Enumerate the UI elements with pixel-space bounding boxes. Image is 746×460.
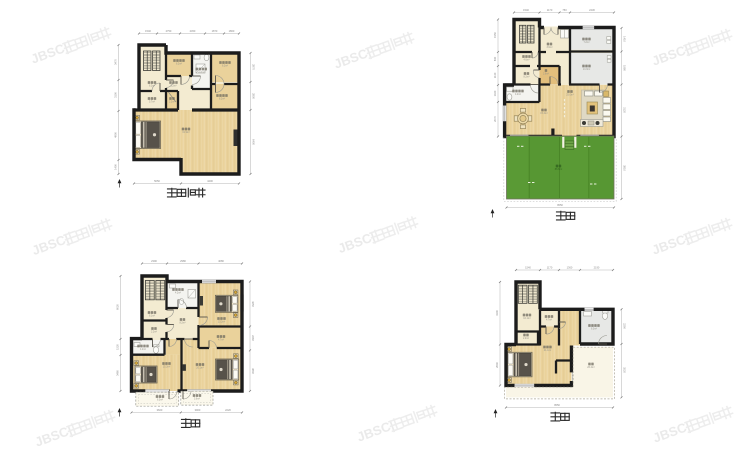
svg-text:1400: 1400 — [114, 164, 118, 170]
svg-text:8.2m²: 8.2m² — [179, 321, 185, 324]
svg-text:8.2m²: 8.2m² — [219, 97, 225, 100]
svg-text:2.2m²: 2.2m² — [523, 337, 529, 340]
svg-text:21.1m²: 21.1m² — [544, 349, 552, 352]
svg-text:6.2m²: 6.2m² — [222, 64, 228, 67]
svg-text:31.9m²: 31.9m² — [182, 131, 190, 134]
svg-text:2750: 2750 — [166, 29, 172, 33]
svg-text:86.6m²: 86.6m² — [555, 168, 563, 171]
svg-text:6.3m²: 6.3m² — [157, 398, 163, 401]
svg-text:4.2m²: 4.2m² — [198, 71, 204, 74]
svg-text:6400: 6400 — [251, 139, 255, 145]
svg-text:1870: 1870 — [212, 29, 218, 33]
svg-text:1360: 1360 — [567, 266, 573, 270]
svg-text:4.2m²: 4.2m² — [175, 291, 181, 294]
svg-text:4250: 4250 — [251, 301, 255, 307]
svg-text:4.2m²: 4.2m² — [515, 93, 521, 96]
svg-text:4900: 4900 — [114, 132, 118, 138]
svg-text:3.2m²: 3.2m² — [170, 84, 176, 87]
svg-text:1950: 1950 — [493, 32, 497, 38]
svg-text:5.7m²: 5.7m² — [149, 100, 155, 103]
svg-text:2430: 2430 — [589, 8, 595, 12]
svg-text:2800: 2800 — [251, 93, 255, 99]
svg-text:14.3m²: 14.3m² — [583, 68, 591, 71]
svg-text:2980: 2980 — [180, 259, 186, 263]
svg-text:1800: 1800 — [229, 29, 235, 33]
svg-text:1540: 1540 — [525, 266, 531, 270]
svg-text:1170: 1170 — [547, 266, 553, 270]
svg-text:6.3m²: 6.3m² — [591, 327, 597, 330]
svg-text:4.2m²: 4.2m² — [140, 348, 146, 351]
svg-text:3900: 3900 — [195, 408, 201, 412]
svg-text:4.6m²: 4.6m² — [523, 58, 529, 61]
svg-text:4.7m²: 4.7m² — [546, 318, 552, 321]
svg-text:3840: 3840 — [251, 368, 255, 374]
svg-text:1170: 1170 — [547, 8, 553, 12]
svg-text:6.2m²: 6.2m² — [176, 62, 182, 65]
svg-text:6.2m²: 6.2m² — [149, 84, 155, 87]
svg-text:3470: 3470 — [114, 59, 118, 65]
svg-text:3460: 3460 — [116, 370, 120, 376]
svg-text:20.1m²: 20.1m² — [196, 366, 204, 369]
svg-text:15.2m²: 15.2m² — [163, 365, 171, 368]
svg-text:1980: 1980 — [622, 65, 626, 71]
svg-text:9550: 9550 — [557, 203, 563, 207]
svg-text:2.2m²: 2.2m² — [151, 330, 157, 333]
svg-text:3600: 3600 — [157, 408, 163, 412]
svg-text:750: 750 — [562, 8, 567, 12]
svg-text:26.4m²: 26.4m² — [587, 366, 595, 369]
svg-text:6020: 6020 — [116, 304, 120, 310]
svg-text:1020: 1020 — [493, 90, 497, 96]
svg-text:2220: 2220 — [225, 408, 231, 412]
svg-text:4100: 4100 — [495, 310, 499, 316]
svg-text:9550: 9550 — [554, 403, 560, 407]
svg-text:2.6m²: 2.6m² — [543, 72, 549, 75]
svg-text:2070: 2070 — [493, 116, 497, 122]
svg-text:2190: 2190 — [594, 266, 600, 270]
svg-text:2450: 2450 — [190, 29, 196, 33]
svg-text:25.0m²: 25.0m² — [566, 93, 574, 96]
svg-text:15.4m²: 15.4m² — [540, 112, 548, 115]
svg-text:5050: 5050 — [154, 179, 160, 183]
svg-text:1410: 1410 — [622, 36, 626, 42]
svg-text:3100: 3100 — [114, 92, 118, 98]
svg-text:4.7m²: 4.7m² — [218, 338, 224, 341]
svg-text:4400: 4400 — [207, 179, 213, 183]
svg-text:3.6m²: 3.6m² — [546, 46, 552, 49]
svg-text:2260: 2260 — [251, 335, 255, 341]
svg-text:8.2m²: 8.2m² — [523, 75, 529, 78]
svg-text:5.6m²: 5.6m² — [194, 397, 200, 400]
svg-text:2390: 2390 — [151, 259, 157, 263]
svg-text:7.2m²: 7.2m² — [583, 41, 589, 44]
svg-text:3120: 3120 — [622, 107, 626, 113]
svg-text:3810: 3810 — [622, 165, 626, 171]
svg-text:6.1m²: 6.1m² — [149, 314, 155, 317]
svg-text:4080: 4080 — [218, 259, 224, 263]
svg-text:2290: 2290 — [622, 323, 626, 329]
svg-text:840: 840 — [493, 56, 497, 61]
svg-text:2640: 2640 — [495, 362, 499, 368]
svg-text:2870: 2870 — [251, 64, 255, 70]
svg-text:3520: 3520 — [622, 367, 626, 373]
svg-text:1140: 1140 — [493, 72, 497, 78]
svg-text:10.1m²: 10.1m² — [523, 317, 531, 320]
svg-text:13.2m²: 13.2m² — [218, 320, 226, 323]
svg-text:2.2m²: 2.2m² — [169, 100, 175, 103]
svg-text:1540: 1540 — [523, 8, 529, 12]
svg-text:1520: 1520 — [116, 344, 120, 350]
svg-text:1540: 1540 — [145, 29, 151, 33]
